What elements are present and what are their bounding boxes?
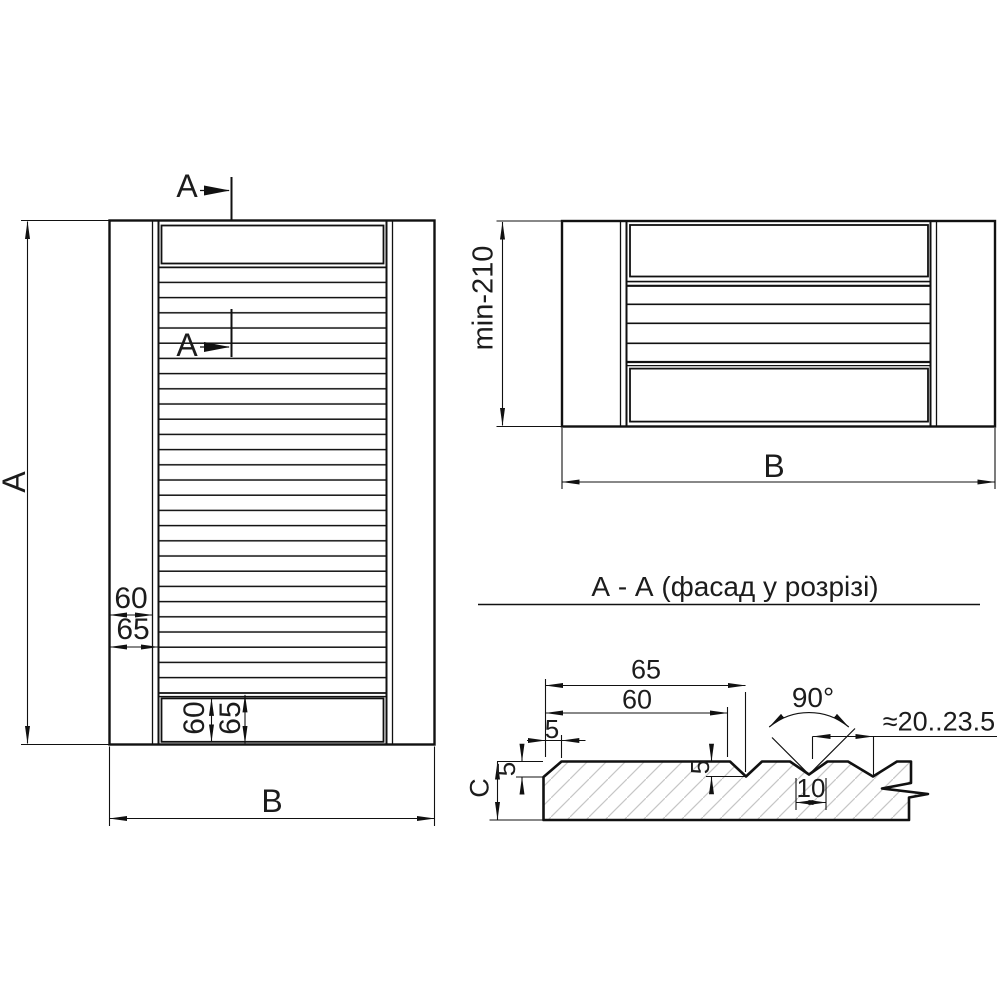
sec-dim-60-label: 60: [622, 687, 652, 714]
section-title: А - А (фасад у розрізі): [591, 573, 878, 601]
plan-dim-height-label: min-210: [470, 246, 499, 351]
section-marker-top-label: A: [176, 170, 197, 202]
front-top-rail-panel: [162, 226, 384, 264]
drawing-linework: [0, 0, 1000, 1000]
sec-dim-thickness-label: C: [467, 778, 494, 798]
sec-dim-notch-depth-label: 5: [687, 760, 713, 774]
sec-dim-groove-angle-label: 90°: [792, 684, 834, 712]
front-dim-rail-face-label: 60: [180, 701, 210, 734]
front-dim-width-label: B: [261, 785, 282, 817]
front-dim-stile-full-label: 65: [116, 615, 149, 645]
sec-dim-chamfer-width-label: 5: [545, 716, 559, 742]
front-dim-height-label: A: [0, 471, 30, 492]
section-marker-mid-label: A: [176, 329, 197, 361]
sec-dim-groove-width-label: 10: [797, 775, 826, 801]
plan-dim-width-label: B: [763, 450, 784, 482]
front-dim-stile-face-label: 60: [114, 584, 147, 614]
plan-bottom-rail-panel: [630, 369, 928, 422]
front-dim-rail-full-label: 65: [216, 701, 246, 734]
plan-view: [497, 221, 996, 489]
section-profile: [544, 762, 929, 821]
sec-dim-chamfer-depth-label: 5: [493, 762, 519, 776]
groove-angle-arc: [769, 713, 849, 727]
sec-dim-65-label: 65: [631, 657, 661, 684]
technical-drawing-canvas: A A A 60 65 60 65 B min-210 B А - А (фас…: [0, 0, 1000, 1000]
plan-top-rail-panel: [630, 225, 928, 277]
sec-dim-spacing-label: ≈20..23.5: [883, 709, 995, 736]
